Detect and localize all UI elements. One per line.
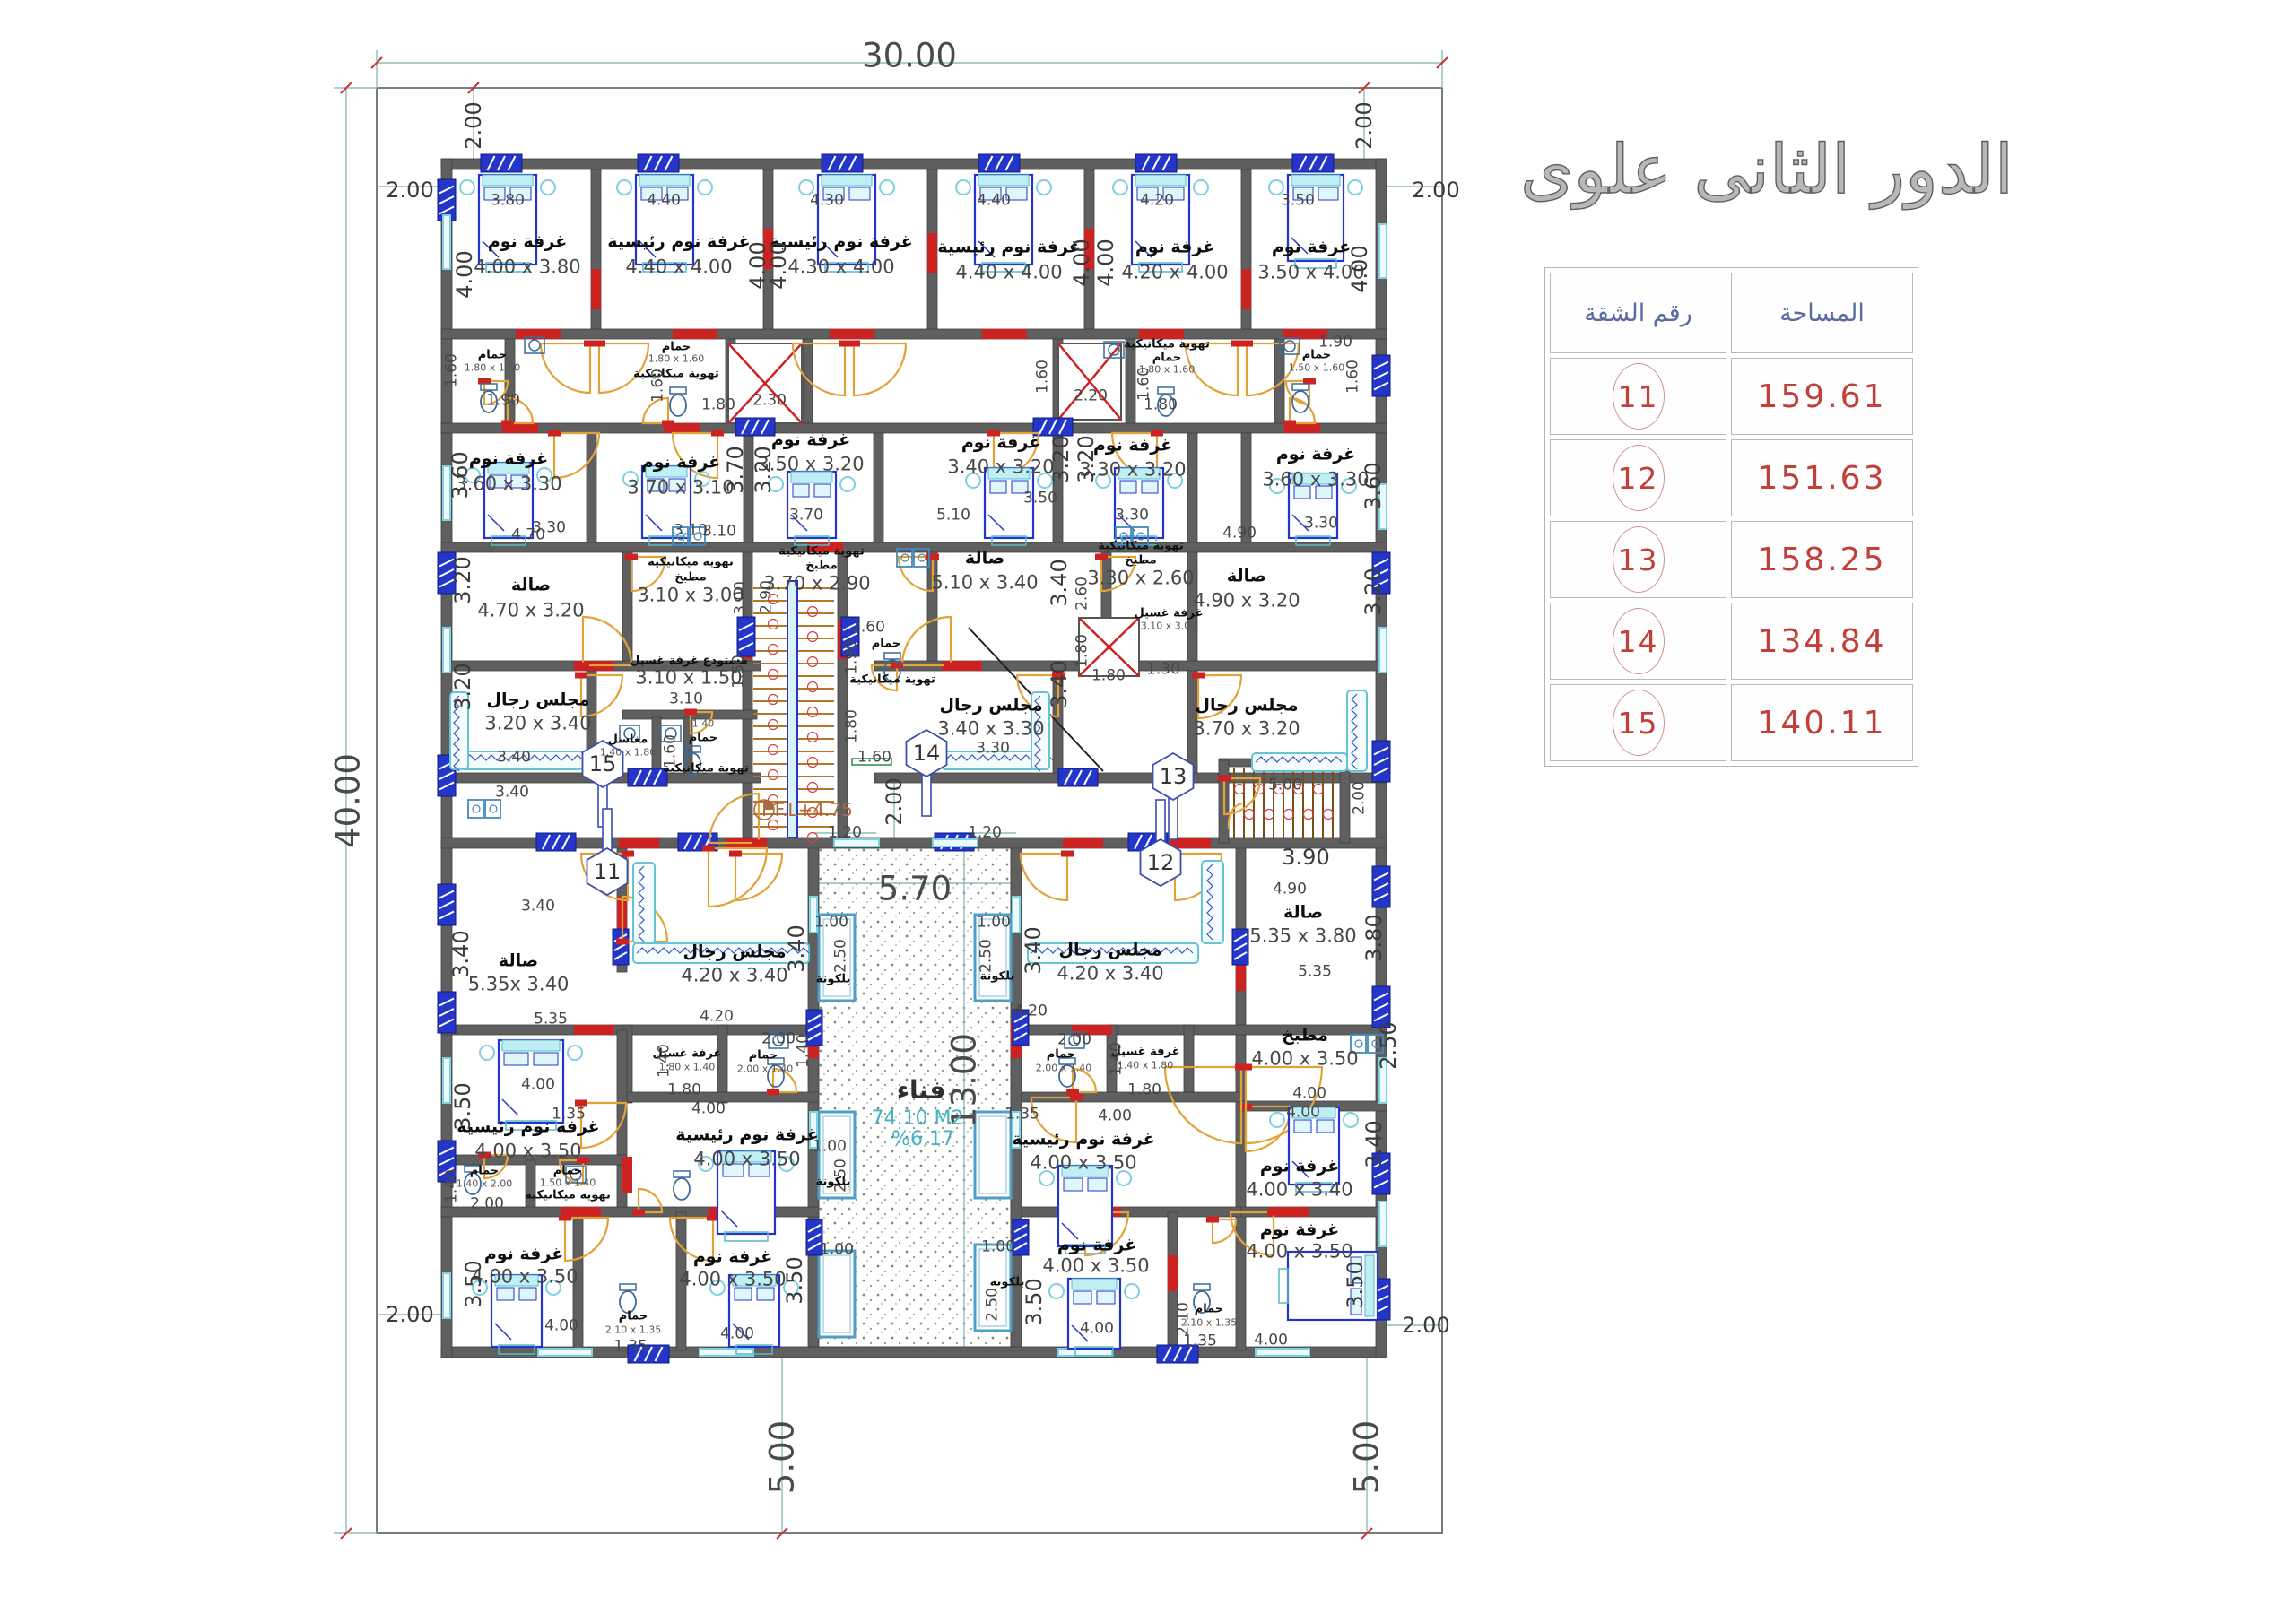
floor-plan-sheet: 1511141312 30.0040.002.002.002.002.002.0… <box>0 0 2296 1623</box>
apartment-number-badge: 14 <box>1613 608 1665 674</box>
area-value: 151.63 <box>1758 460 1887 497</box>
table-row: 134.8414 <box>1550 603 1913 680</box>
svg-text:11: 11 <box>594 859 622 884</box>
area-value: 134.84 <box>1758 623 1887 660</box>
svg-text:15: 15 <box>589 751 617 777</box>
table-header-row: المساحة رقم الشقة <box>1550 273 1913 353</box>
table-row: 151.6312 <box>1550 439 1913 516</box>
floor-plan-drawing: 1511141312 <box>0 0 2296 1623</box>
svg-text:14: 14 <box>913 741 941 766</box>
table-row: 140.1115 <box>1550 684 1913 761</box>
apartment-number-badge: 15 <box>1613 690 1665 756</box>
svg-text:12: 12 <box>1147 850 1175 875</box>
table-row: 159.6111 <box>1550 358 1913 435</box>
area-value: 159.61 <box>1758 378 1887 415</box>
col-header-apartment: رقم الشقة <box>1550 273 1726 353</box>
area-value: 158.25 <box>1758 542 1887 578</box>
table-body: 159.6111151.6312158.2513134.8414140.1115 <box>1550 358 1913 761</box>
svg-text:13: 13 <box>1160 764 1187 789</box>
sheet-title: الدور الثانى علوى <box>1489 115 2045 222</box>
apartment-number-badge: 11 <box>1613 363 1665 430</box>
apartment-area-table: المساحة رقم الشقة 159.6111151.6312158.25… <box>1544 267 1918 767</box>
apartment-number-badge: 12 <box>1613 445 1665 511</box>
table-row: 158.2513 <box>1550 521 1913 598</box>
area-value: 140.11 <box>1758 705 1887 742</box>
apartment-number-badge: 13 <box>1613 526 1665 593</box>
col-header-area: المساحة <box>1731 273 1913 353</box>
